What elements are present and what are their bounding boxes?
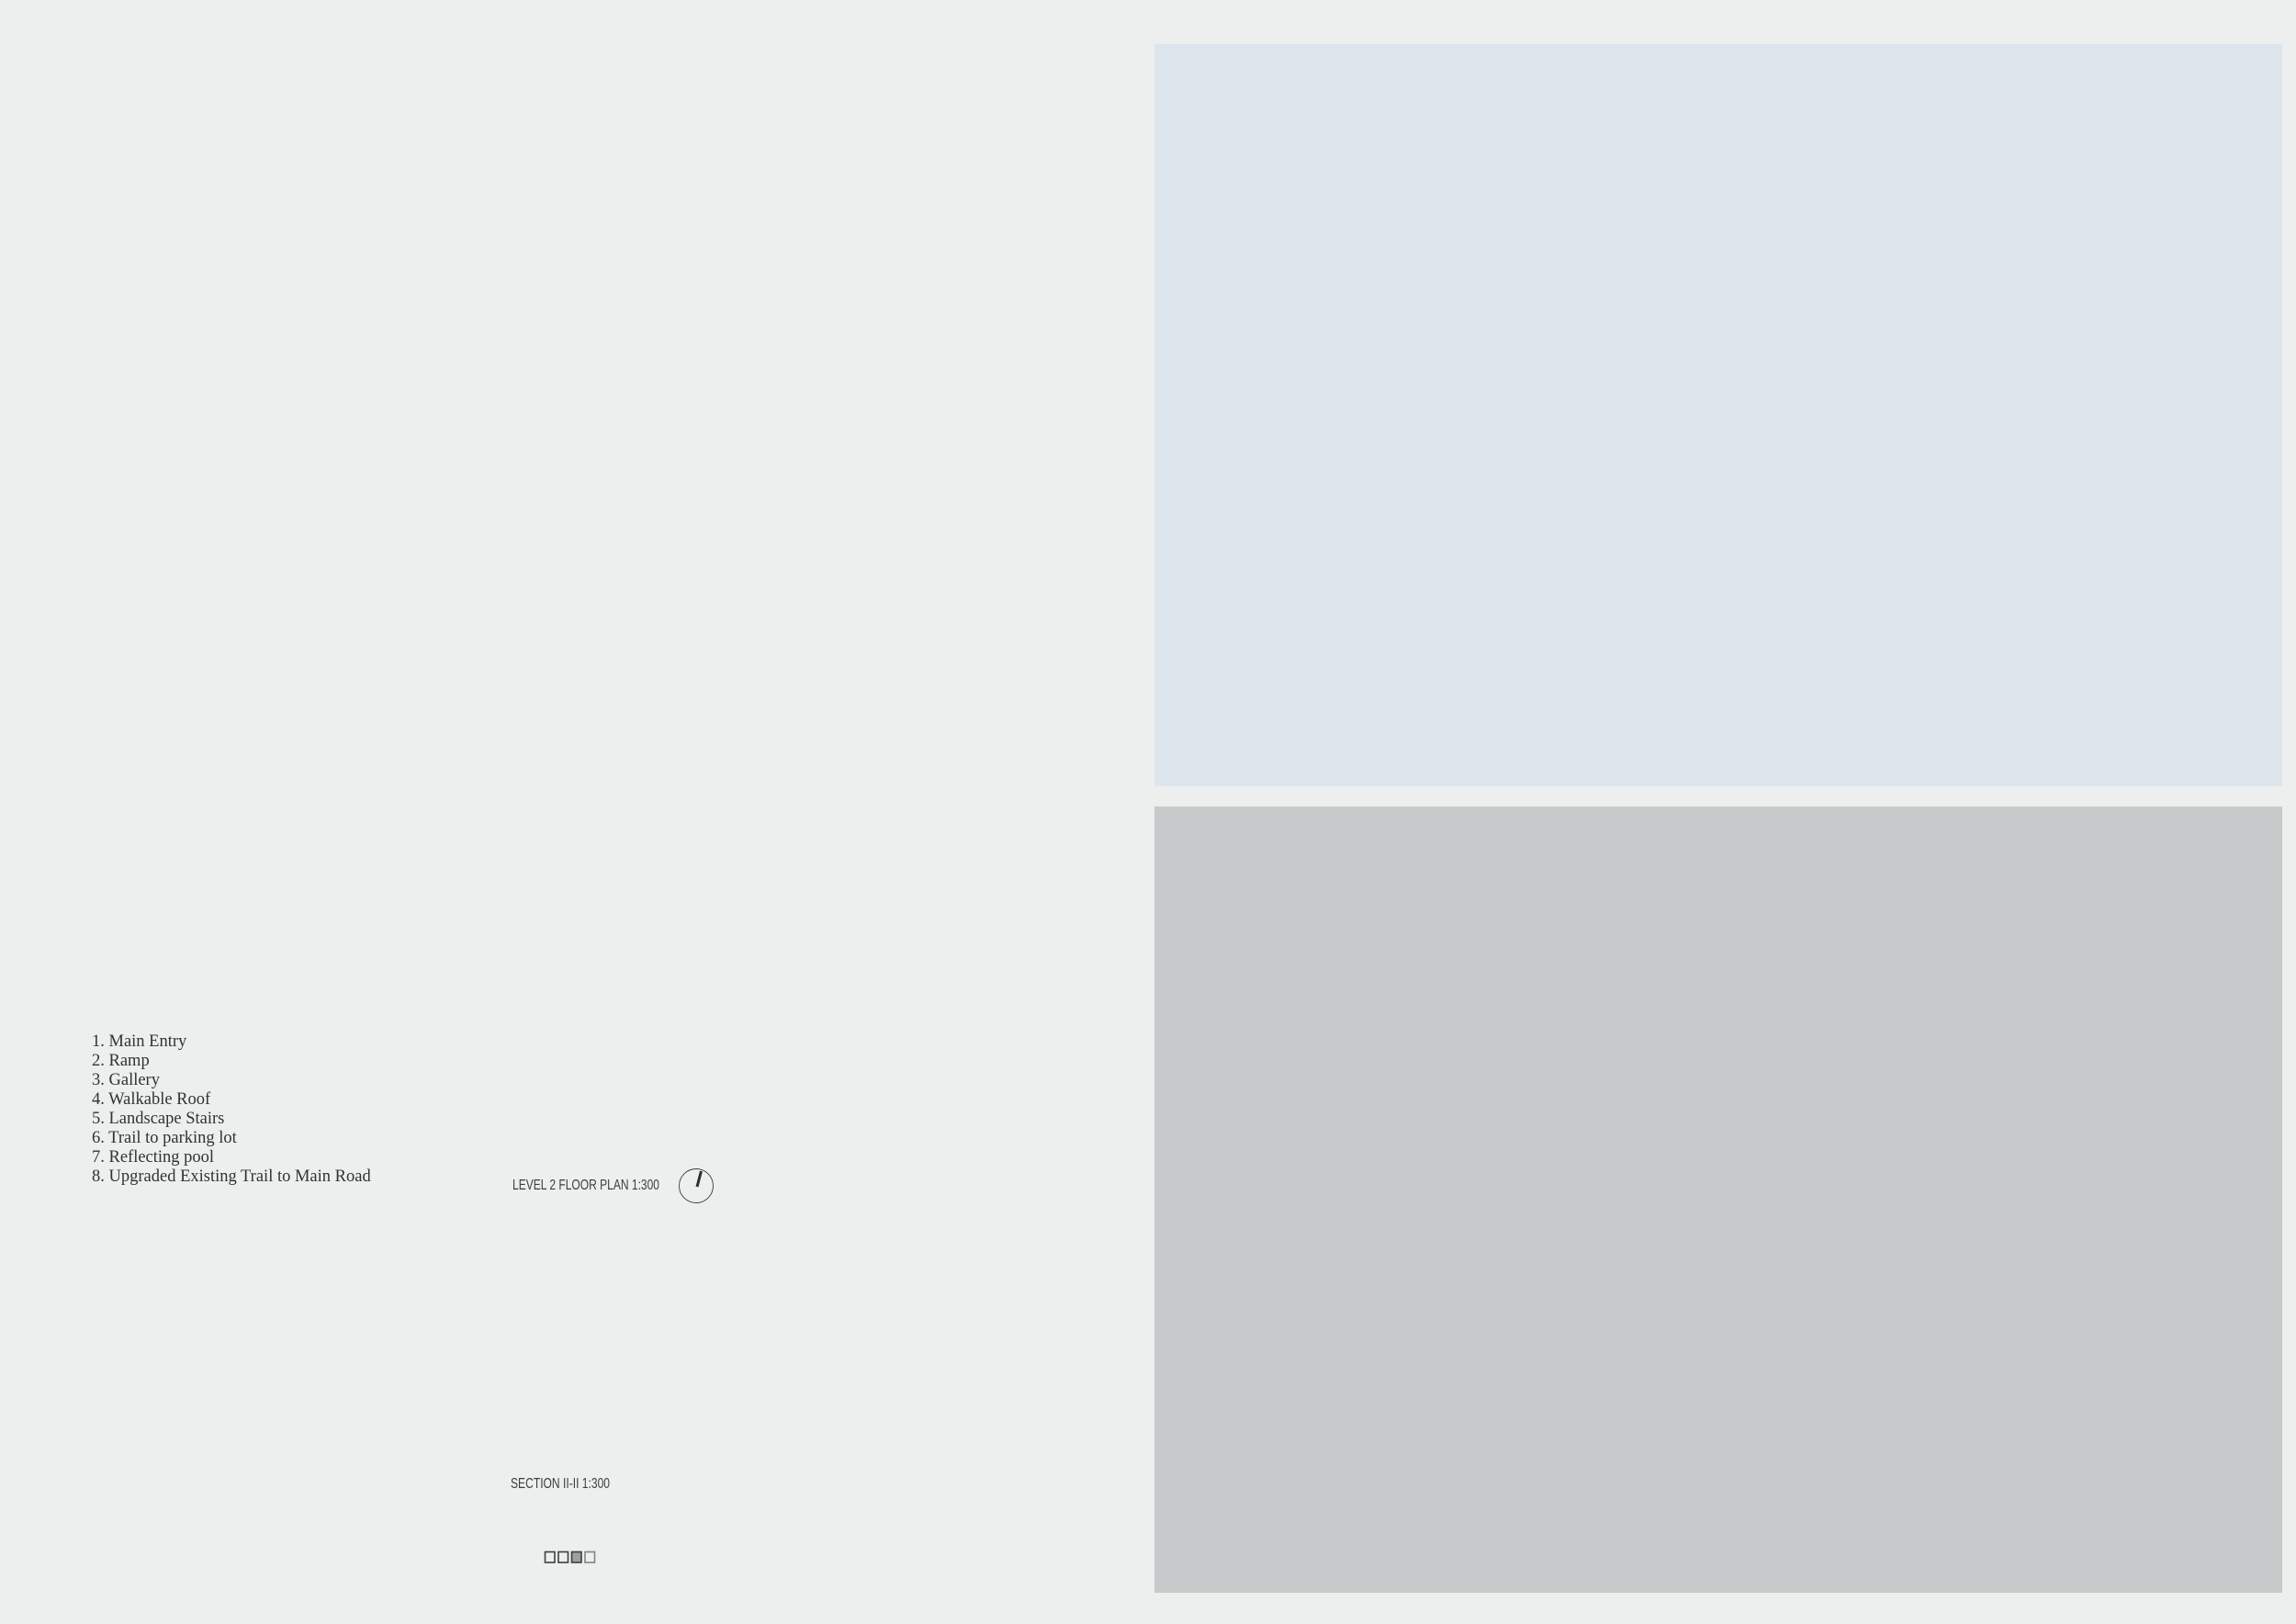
svg-text:8. Upgraded Existing Trail to: 8. Upgraded Existing Trail to Main Road	[92, 1167, 371, 1186]
svg-text:4. Walkable Roof: 4. Walkable Roof	[92, 1090, 211, 1109]
svg-text:1. Main Entry: 1. Main Entry	[92, 1032, 187, 1051]
svg-text:2. Ramp: 2. Ramp	[92, 1052, 150, 1070]
svg-text:3. Gallery: 3. Gallery	[92, 1071, 161, 1089]
svg-text:SECTION II-II 1:300: SECTION II-II 1:300	[511, 1476, 610, 1492]
svg-text:6. Trail to parking lot: 6. Trail to parking lot	[92, 1129, 238, 1147]
svg-text:5. Landscape Stairs: 5. Landscape Stairs	[92, 1110, 224, 1128]
svg-text:LEVEL 2 FLOOR PLAN 1:300: LEVEL 2 FLOOR PLAN 1:300	[512, 1178, 659, 1193]
svg-text:7. Reflecting pool: 7. Reflecting pool	[92, 1148, 214, 1167]
